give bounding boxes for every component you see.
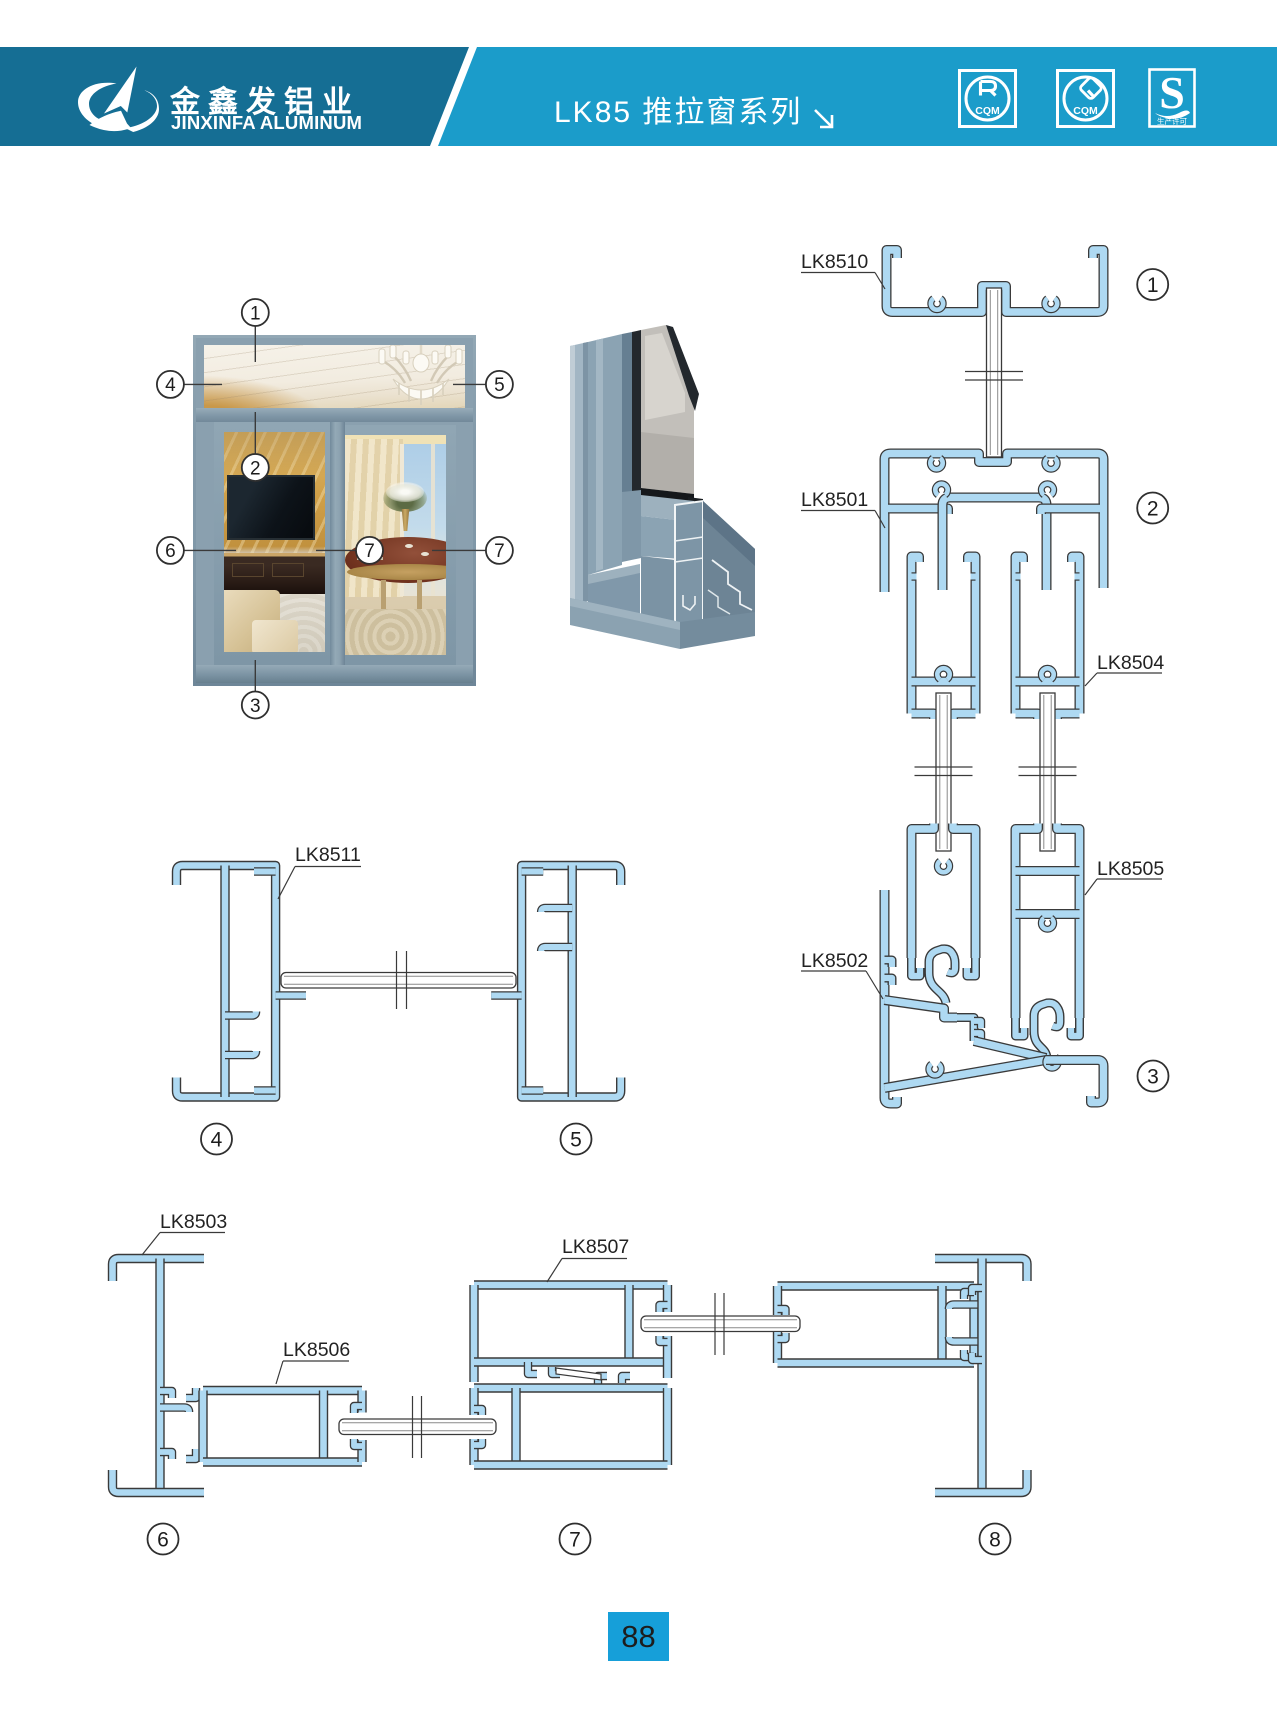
svg-text:5: 5 bbox=[570, 1129, 582, 1152]
svg-text:2: 2 bbox=[250, 458, 261, 479]
svg-text:LK8510: LK8510 bbox=[801, 251, 868, 273]
svg-text:1: 1 bbox=[1147, 274, 1159, 297]
svg-text:LK8504: LK8504 bbox=[1097, 652, 1164, 674]
svg-text:LK8511: LK8511 bbox=[295, 844, 361, 866]
svg-text:1: 1 bbox=[250, 303, 261, 324]
svg-text:LK8505: LK8505 bbox=[1097, 858, 1164, 880]
svg-text:3: 3 bbox=[250, 696, 261, 717]
svg-text:4: 4 bbox=[165, 375, 176, 396]
svg-text:8: 8 bbox=[989, 1529, 1001, 1552]
svg-text:7: 7 bbox=[569, 1529, 581, 1552]
svg-text:6: 6 bbox=[165, 541, 176, 562]
svg-text:4: 4 bbox=[211, 1129, 223, 1152]
svg-text:3: 3 bbox=[1147, 1066, 1159, 1089]
svg-text:LK8507: LK8507 bbox=[562, 1236, 629, 1258]
svg-text:LK8502: LK8502 bbox=[801, 950, 868, 972]
svg-text:LK8503: LK8503 bbox=[160, 1211, 227, 1233]
svg-text:5: 5 bbox=[494, 375, 505, 396]
svg-text:6: 6 bbox=[157, 1529, 169, 1552]
svg-text:LK8501: LK8501 bbox=[801, 489, 868, 511]
svg-text:7: 7 bbox=[364, 541, 375, 562]
svg-text:LK8506: LK8506 bbox=[283, 1339, 350, 1361]
svg-text:2: 2 bbox=[1147, 498, 1159, 521]
svg-text:7: 7 bbox=[494, 541, 505, 562]
